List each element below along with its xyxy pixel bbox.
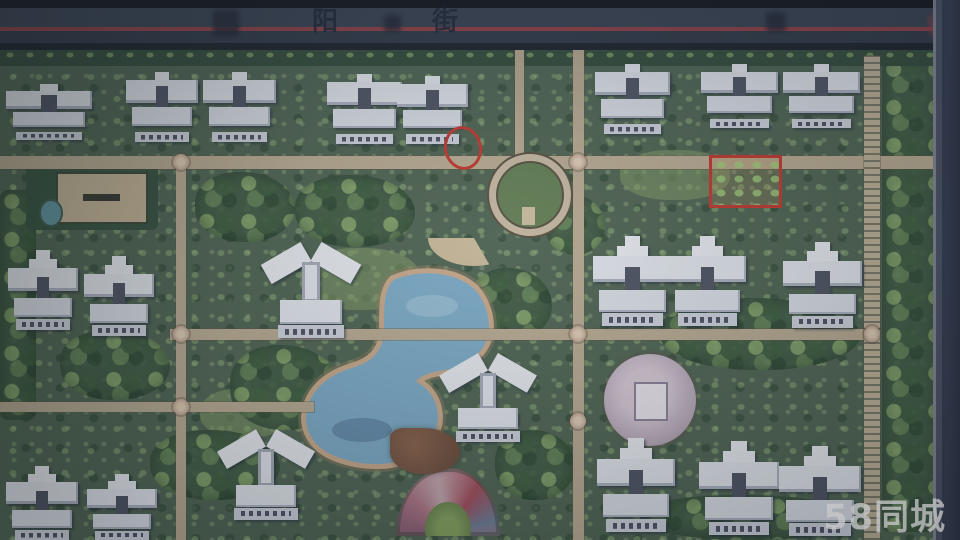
watermark-58tongcheng: 58同城: [823, 489, 946, 540]
street-red-centerline: [0, 27, 960, 31]
street-name-label: 街: [432, 9, 458, 35]
street-mark-blur: [766, 12, 786, 32]
site-plan-map: 阳 街 58同城: [0, 0, 960, 540]
street-right: [933, 0, 960, 540]
annotation-layer: [0, 0, 960, 540]
red-rect-annotation: [709, 155, 782, 208]
site-plan-photo: 阳 街 58同城: [0, 0, 960, 540]
street-name-label: 阳: [312, 9, 338, 35]
street-top: 阳 街: [0, 0, 960, 50]
street-name-blur: [213, 10, 239, 36]
red-ellipse-annotation: [440, 123, 486, 174]
street-name-blur: [384, 15, 401, 32]
